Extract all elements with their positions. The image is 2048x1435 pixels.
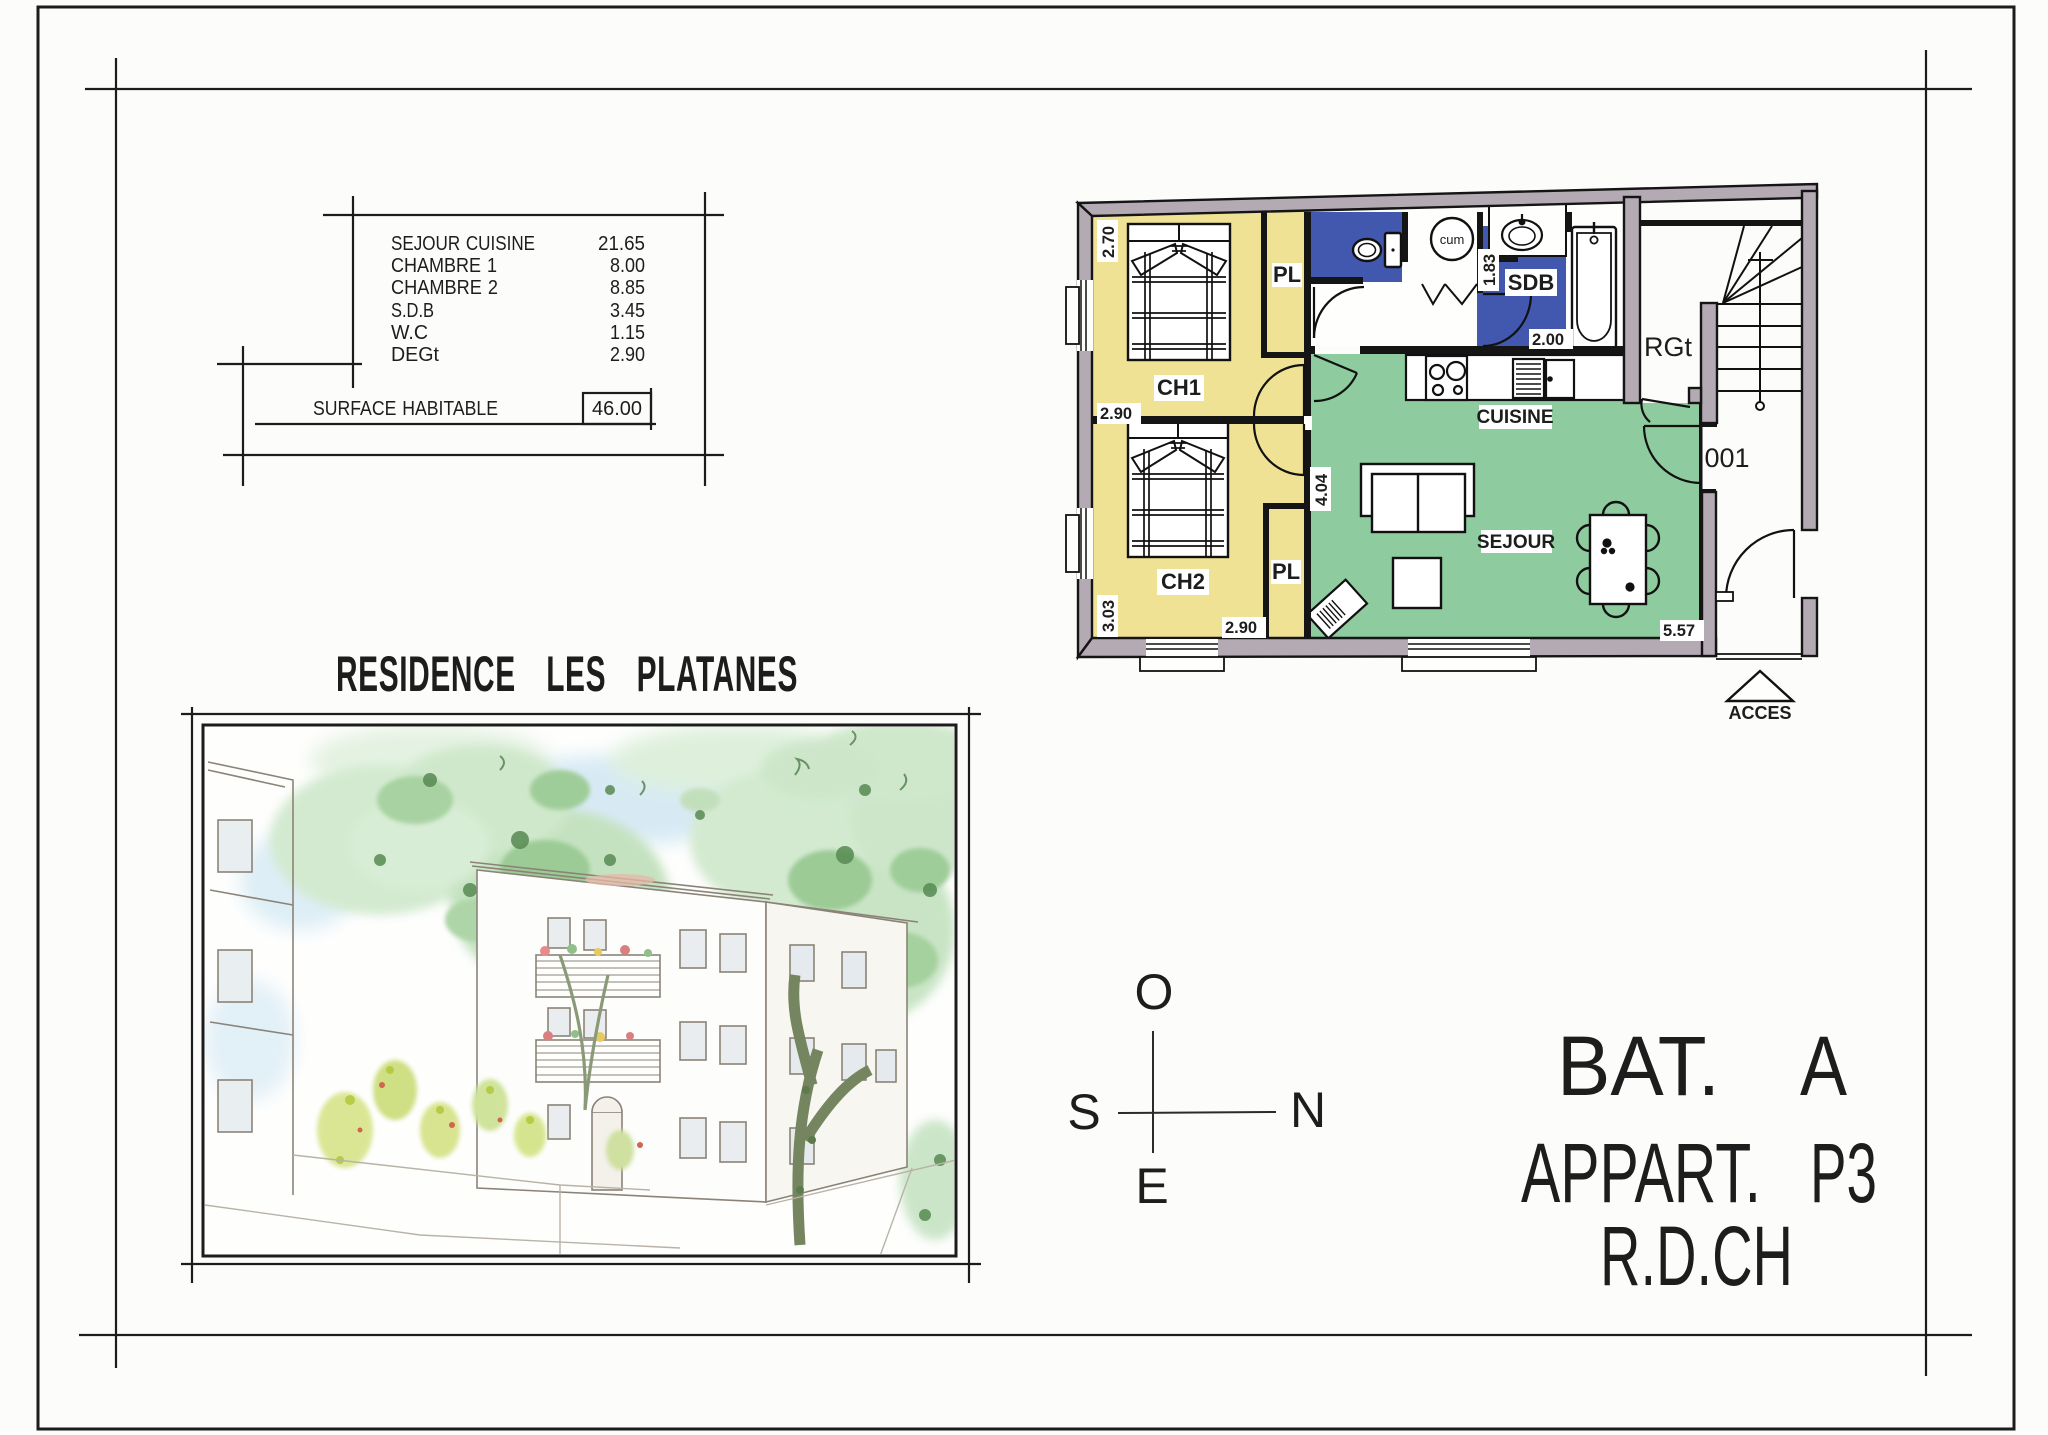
- svg-text:001: 001: [1704, 443, 1749, 473]
- svg-text:A: A: [1800, 1019, 1847, 1113]
- svg-text:E: E: [1135, 1158, 1168, 1214]
- svg-text:2.90: 2.90: [1100, 405, 1132, 423]
- svg-text:W.C: W.C: [391, 321, 428, 344]
- svg-text:3.03: 3.03: [1100, 600, 1118, 632]
- svg-text:BAT.: BAT.: [1557, 1019, 1720, 1113]
- svg-text:8.85: 8.85: [610, 276, 645, 299]
- svg-text:CHAMBRE 2: CHAMBRE 2: [391, 276, 498, 299]
- svg-text:RESIDENCE LES PLATANES: RESIDENCE LES PLATANES: [336, 646, 798, 702]
- svg-text:46.00: 46.00: [592, 397, 642, 420]
- svg-text:CH2: CH2: [1161, 569, 1205, 594]
- svg-text:cum: cum: [1440, 232, 1465, 247]
- svg-text:2.90: 2.90: [610, 343, 645, 366]
- svg-text:5.57: 5.57: [1663, 622, 1695, 640]
- svg-text:CH1: CH1: [1157, 375, 1201, 400]
- svg-text:RGt: RGt: [1644, 332, 1693, 362]
- svg-text:ACCES: ACCES: [1728, 703, 1791, 723]
- svg-text:CHAMBRE 1: CHAMBRE 1: [391, 254, 497, 277]
- svg-text:DEGt: DEGt: [391, 343, 439, 366]
- svg-text:8.00: 8.00: [610, 254, 645, 277]
- svg-text:2.90: 2.90: [1225, 619, 1257, 637]
- svg-text:SEJOUR: SEJOUR: [1477, 532, 1555, 553]
- svg-text:S: S: [1067, 1084, 1100, 1140]
- svg-text:4.04: 4.04: [1313, 473, 1331, 506]
- svg-text:R.D.CH: R.D.CH: [1600, 1209, 1793, 1303]
- svg-text:N: N: [1290, 1082, 1326, 1138]
- svg-text:3.45: 3.45: [610, 299, 645, 322]
- svg-text:PL: PL: [1272, 559, 1300, 584]
- svg-text:2.00: 2.00: [1532, 331, 1564, 349]
- svg-text:SURFACE HABITABLE: SURFACE HABITABLE: [313, 397, 498, 420]
- svg-text:P3: P3: [1810, 1126, 1877, 1220]
- svg-text:SEJOUR CUISINE: SEJOUR CUISINE: [391, 232, 535, 255]
- svg-text:PL: PL: [1273, 262, 1301, 287]
- svg-text:21.65: 21.65: [598, 232, 645, 255]
- svg-text:O: O: [1135, 964, 1174, 1020]
- svg-text:1.83: 1.83: [1481, 254, 1499, 286]
- svg-text:CUISINE: CUISINE: [1476, 407, 1553, 428]
- svg-text:APPART.: APPART.: [1521, 1126, 1761, 1220]
- svg-text:2.70: 2.70: [1100, 226, 1118, 258]
- svg-text:SDB: SDB: [1508, 270, 1554, 295]
- svg-text:S.D.B: S.D.B: [391, 299, 434, 322]
- svg-text:1.15: 1.15: [610, 321, 645, 344]
